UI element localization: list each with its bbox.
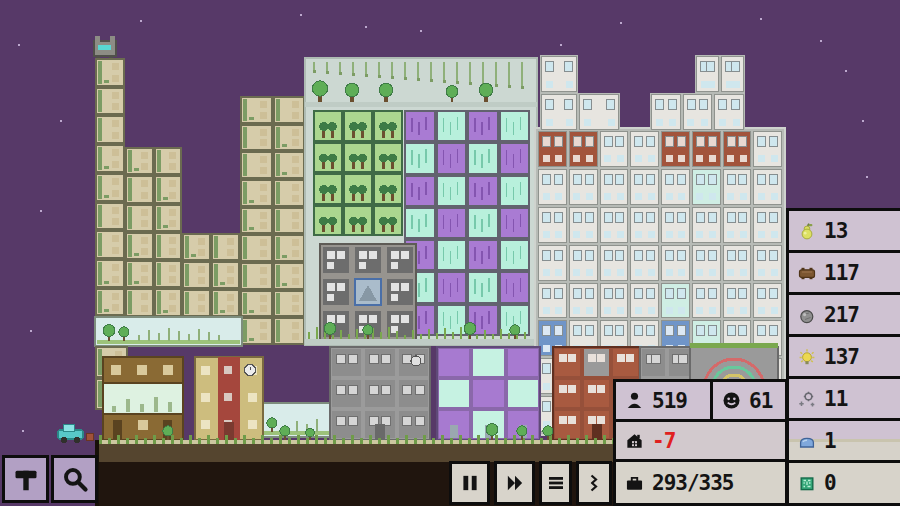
house-icon: [624, 430, 645, 451]
menu-button[interactable]: [539, 461, 572, 505]
pause-button[interactable]: [449, 461, 490, 505]
chips-value: 0: [824, 471, 836, 495]
stone-icon: [797, 305, 817, 325]
energy-value: 137: [824, 345, 859, 369]
machine-parts-icon: [797, 389, 817, 409]
happiness-value: 61: [749, 389, 772, 413]
wood-value: 117: [824, 261, 859, 285]
population-value: 519: [652, 389, 687, 413]
expand-button[interactable]: [576, 461, 612, 505]
fast-forward-icon: [504, 472, 526, 494]
resource-row-energy: 137: [786, 334, 900, 379]
housing-value: -7: [652, 429, 675, 453]
resource-row-food: 13: [786, 208, 900, 253]
resource-row-wood: 117: [786, 250, 900, 295]
resource-row-chips: 0: [786, 460, 900, 506]
resource-row-machine-parts: 11: [786, 376, 900, 421]
machine-parts-value: 11: [824, 387, 847, 411]
workers-cell: 293/335: [613, 459, 788, 506]
fast-forward-button[interactable]: [494, 461, 535, 505]
magnifier-icon: [60, 464, 90, 494]
pause-icon: [459, 472, 481, 494]
game-screen: { "hud": { "resources": [ {"name":"food"…: [0, 0, 900, 506]
build-button[interactable]: [2, 455, 49, 503]
pear-icon: [797, 221, 817, 241]
hammer-icon: [11, 464, 41, 494]
chip-icon: [797, 473, 817, 493]
population-cell: 519: [613, 379, 713, 422]
housing-cell: -7: [613, 419, 788, 462]
briefcase-icon: [624, 472, 645, 493]
stone-value: 217: [824, 303, 859, 327]
resource-row-plastic: 1: [786, 418, 900, 463]
resource-row-stone: 217: [786, 292, 900, 337]
happiness-cell: 61: [710, 379, 788, 422]
plastic-value: 1: [824, 429, 836, 453]
food-value: 13: [824, 219, 847, 243]
menu-icon: [546, 473, 566, 493]
wood-icon: [797, 263, 817, 283]
person-icon: [624, 390, 645, 411]
lightbulb-icon: [797, 347, 817, 367]
smiley-icon: [721, 390, 742, 411]
inspect-button[interactable]: [51, 455, 98, 503]
workers-value: 293/335: [652, 471, 734, 495]
plastic-icon: [797, 431, 817, 451]
chevrons-icon: [584, 473, 604, 493]
